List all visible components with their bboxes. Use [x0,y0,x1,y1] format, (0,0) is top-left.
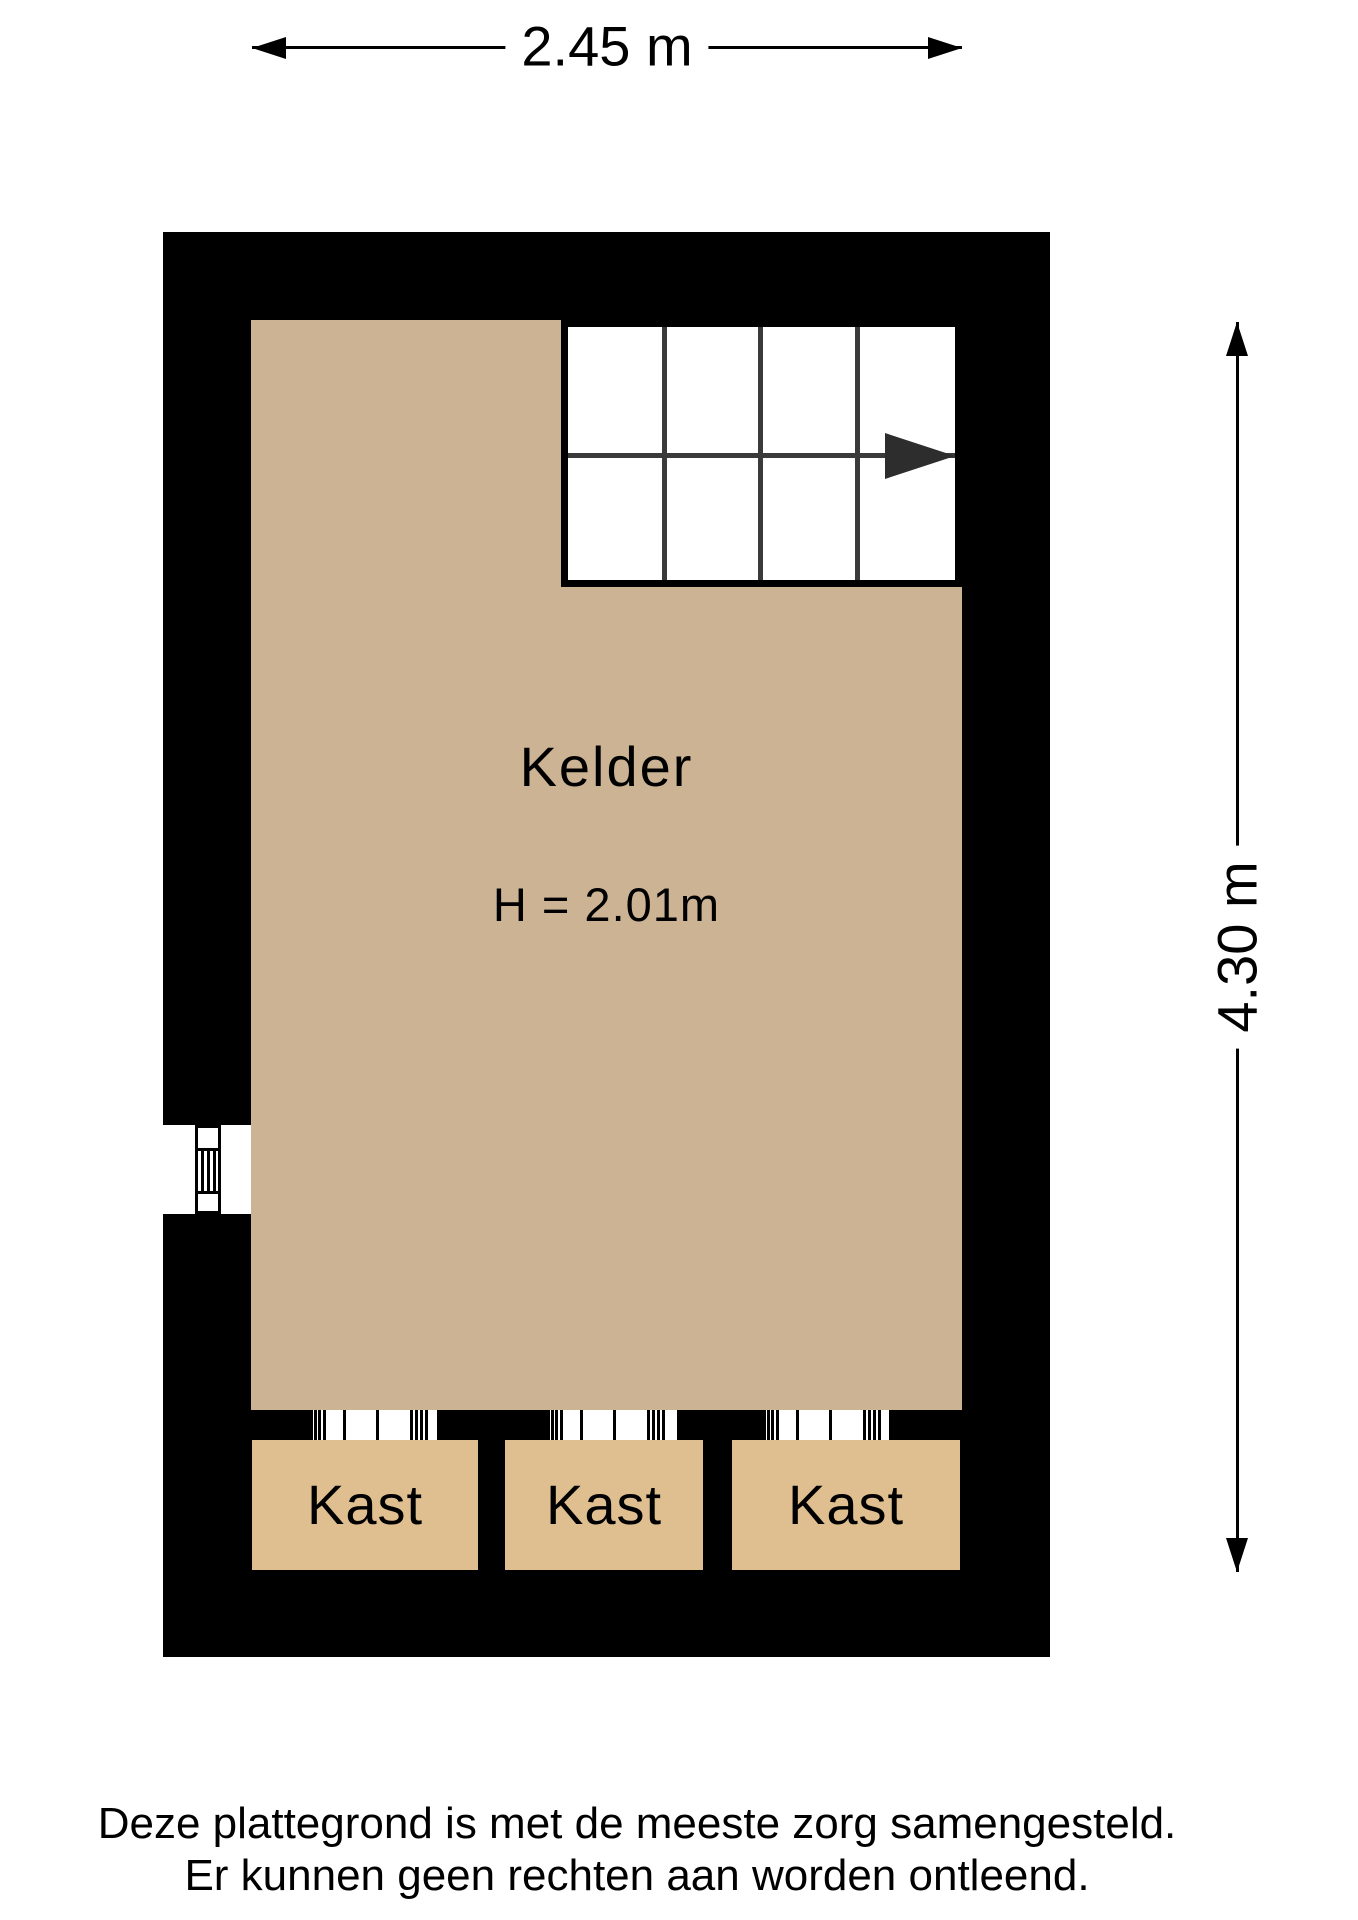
room-height-label: H = 2.01m [251,881,962,928]
closet-label: Kast [546,1477,662,1533]
closet-kast-1: Kast [252,1440,478,1570]
stair-direction-arrow-icon [885,433,955,479]
window-pane-line [207,1148,210,1194]
disclaimer-line-1: Deze plattegrond is met de meeste zorg s… [0,1798,1274,1850]
closet-door-hatch [763,1410,892,1440]
closet-label: Kast [307,1477,423,1533]
dimension-arrow-down-icon [1226,1538,1248,1572]
disclaimer: Deze plattegrond is met de meeste zorg s… [0,1798,1274,1902]
closet-door-hatch [547,1410,680,1440]
width-dimension: 2.45 m [252,33,962,61]
closet-label: Kast [788,1477,904,1533]
disclaimer-line-2: Er kunnen geen rechten aan worden ontlee… [0,1850,1274,1902]
height-dimension: 4.30 m [1222,322,1254,1572]
width-dimension-label: 2.45 m [505,18,708,77]
window-pane-line [201,1148,204,1194]
window-pane-line [213,1148,216,1194]
staircase-treads [568,327,955,580]
closet-kast-2: Kast [505,1440,703,1570]
closet-door-hatch [310,1410,440,1440]
closet-kast-3: Kast [732,1440,960,1570]
dimension-arrow-right-icon [928,37,962,59]
window-icon [195,1125,221,1214]
floor-plan-page: { "room": { "name": "Kelder", "height_no… [0,0,1358,1920]
window-sill-line [198,1191,218,1194]
room-name-label: Kelder [251,739,962,795]
staircase [561,320,962,587]
height-dimension-label: 4.30 m [1209,845,1268,1048]
